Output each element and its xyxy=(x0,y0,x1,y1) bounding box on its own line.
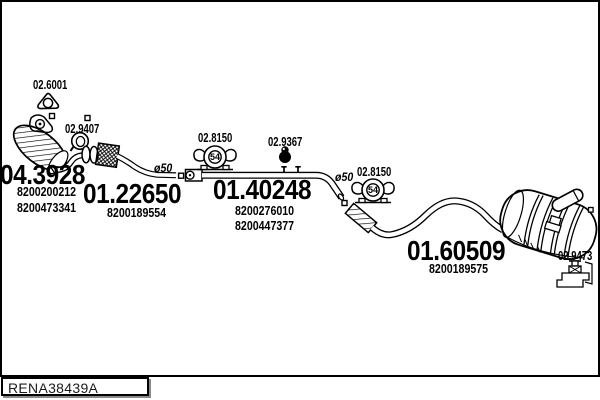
ref-number-8200189575: 8200189575 xyxy=(429,263,488,276)
exhaust-parts-diagram: 02.600102.940704.39288200200212820047334… xyxy=(0,0,600,400)
fitting-label-02-8150-b: 02.8150 xyxy=(357,166,391,179)
fitting-label-02-9473: 02.9473 xyxy=(558,250,592,263)
ref-number-8200447377: 8200447377 xyxy=(235,220,294,233)
ref-number-8200473341: 8200473341 xyxy=(17,202,76,215)
ref-number-8200189554: 8200189554 xyxy=(107,207,166,220)
ref-number-8200200212: 8200200212 xyxy=(17,186,76,199)
diameter-label-a: ø50 xyxy=(154,162,172,174)
hanger-size-b: 54 xyxy=(366,186,381,195)
part-number-01-22650: 01.22650 xyxy=(83,180,181,208)
fitting-label-02-9367: 02.9367 xyxy=(268,136,302,149)
drawing-code: RENA38439A xyxy=(3,379,147,396)
fitting-label-02-8150-a: 02.8150 xyxy=(198,132,232,145)
labels-layer: 02.600102.940704.39288200200212820047334… xyxy=(0,0,600,377)
hanger-size-a: 54 xyxy=(208,153,223,162)
drawing-code-box: RENA38439A xyxy=(1,377,149,396)
ref-number-8200276010: 8200276010 xyxy=(235,205,294,218)
fitting-label-02-9407: 02.9407 xyxy=(65,123,99,136)
diameter-label-b: ø50 xyxy=(335,171,353,183)
part-number-01-40248: 01.40248 xyxy=(213,176,311,204)
fitting-label-02-6001: 02.6001 xyxy=(33,79,67,92)
